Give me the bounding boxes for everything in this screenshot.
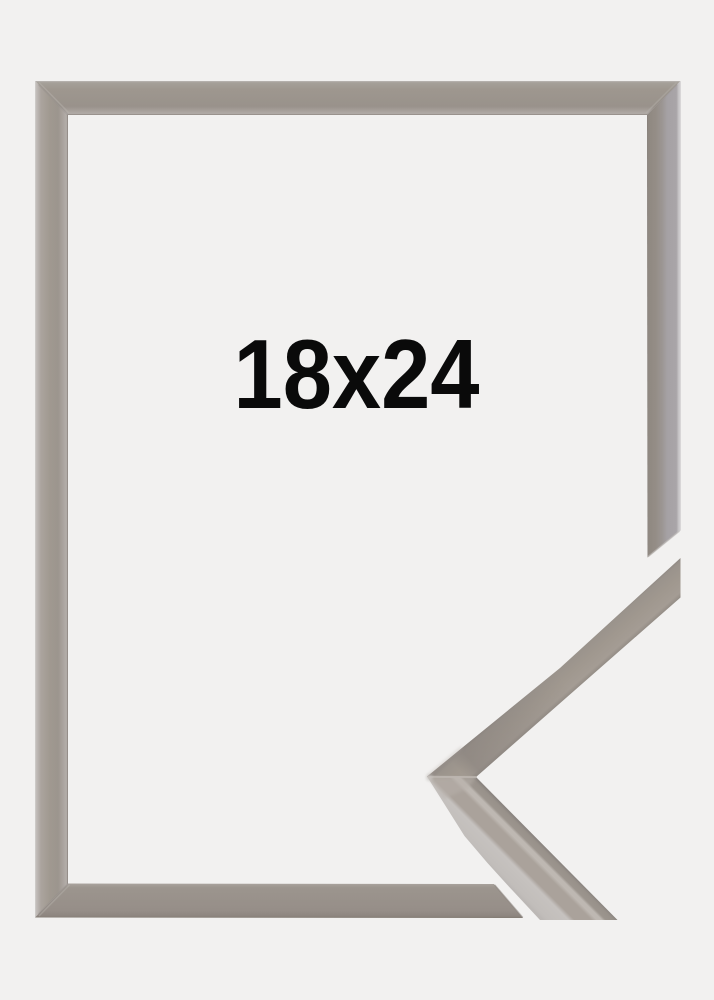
svg-text:18x24: 18x24	[234, 319, 480, 429]
